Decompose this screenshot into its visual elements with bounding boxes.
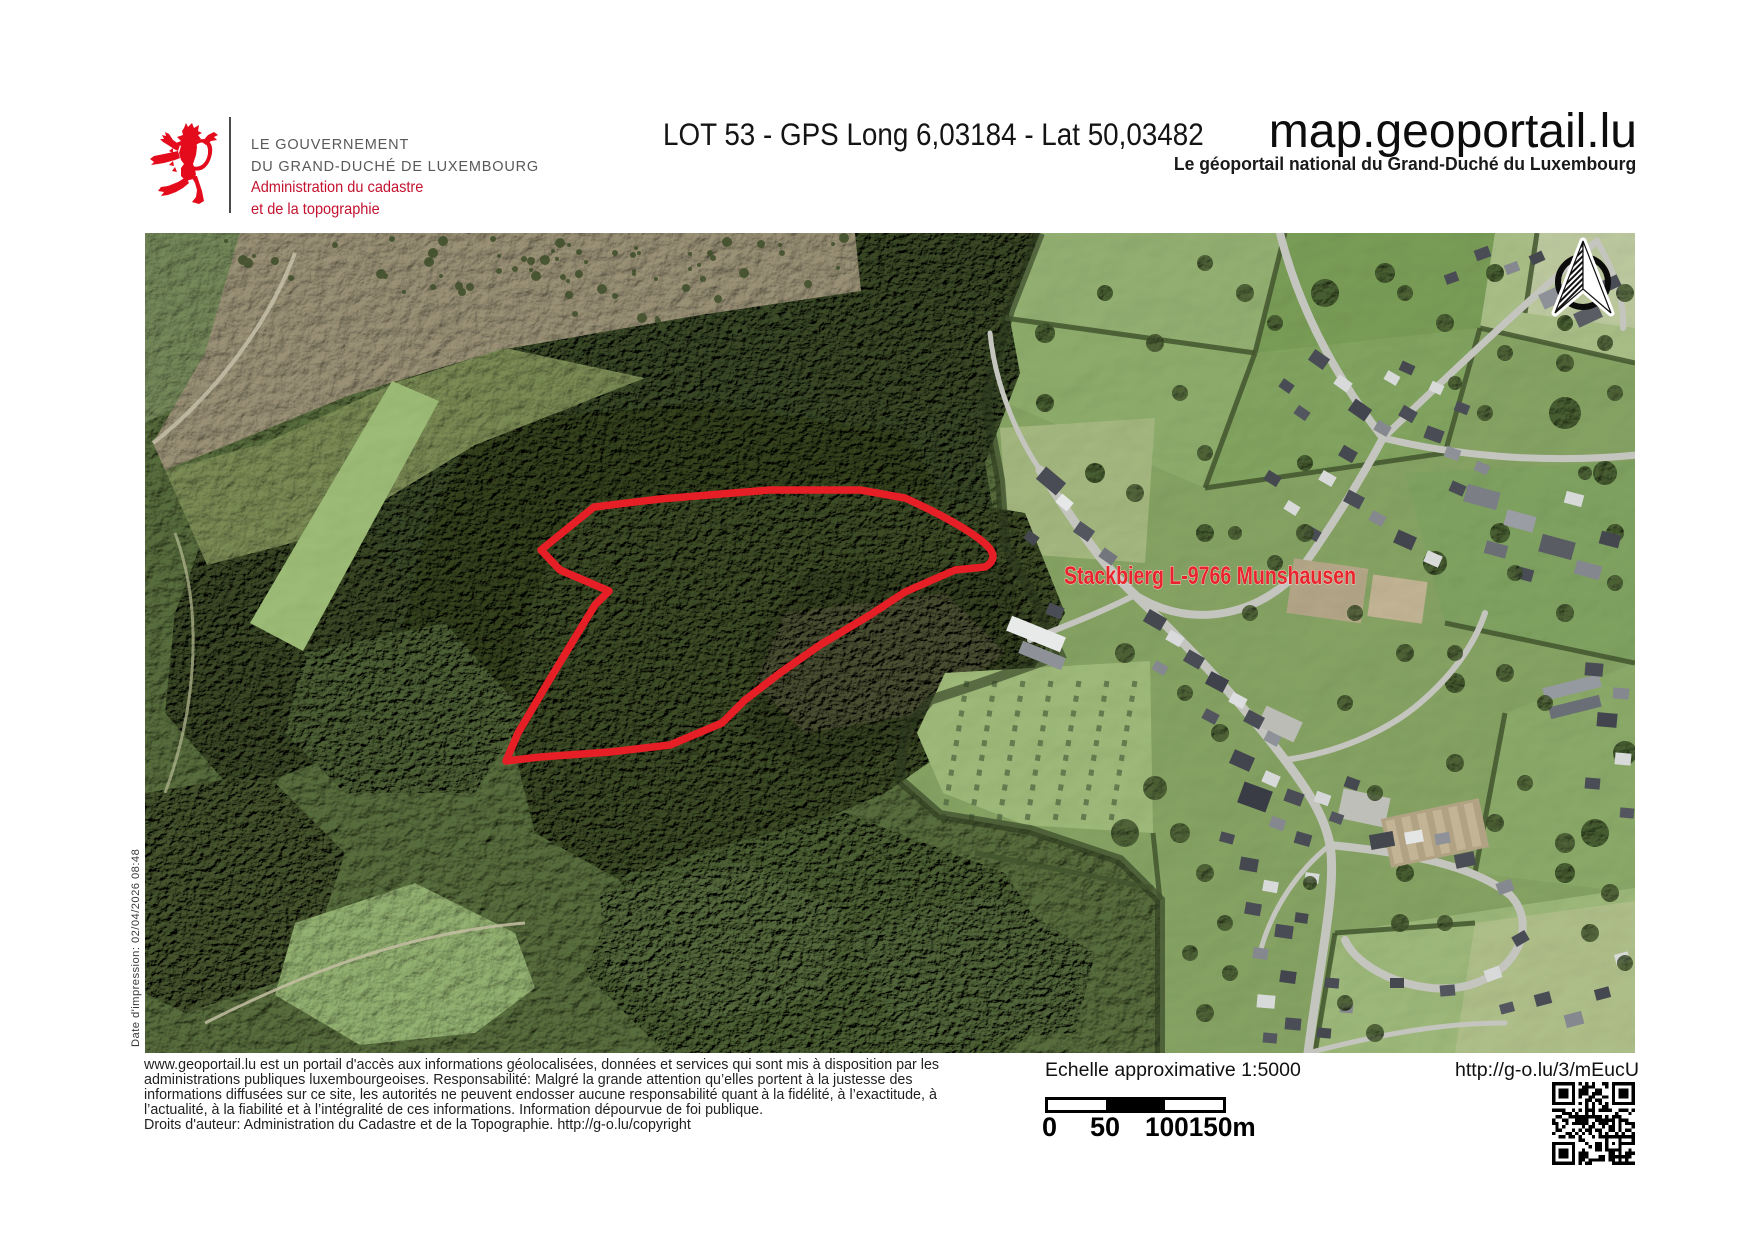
svg-text:Stackbierg L-9766 Munshausen: Stackbierg L-9766 Munshausen (1064, 562, 1356, 590)
